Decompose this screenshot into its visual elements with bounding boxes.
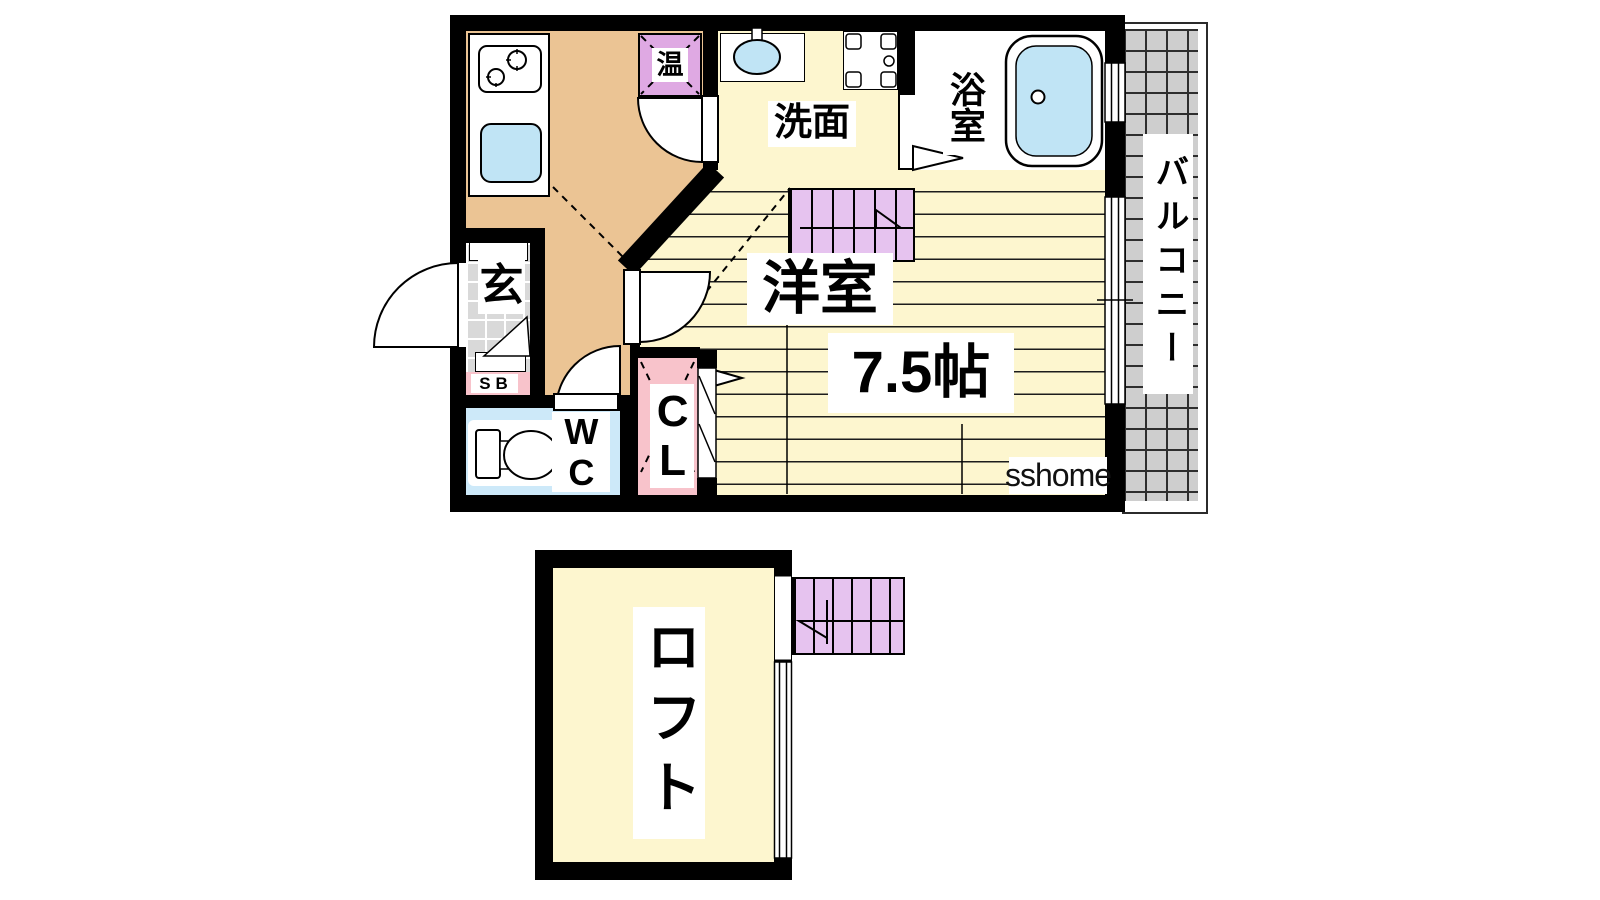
wall-closet-top-stub <box>697 350 717 368</box>
loft-staircase <box>792 577 905 655</box>
washing-machine-pan <box>843 31 898 90</box>
entrance-step-lower <box>475 352 526 372</box>
bathroom-label: 浴室 <box>943 59 987 155</box>
bathroom-door-gap <box>900 95 915 168</box>
western-room-size-label: 7.5帖 <box>828 333 1014 413</box>
entrance-label: 玄 <box>478 258 525 314</box>
floor-plan-canvas: 温 洗面 浴室 洋室 7.5帖 玄 SB WC CL バルコニー ロフト ssh… <box>0 0 1600 900</box>
hallway-floor-lower <box>545 228 630 395</box>
wc-text: WC <box>562 411 600 493</box>
western-room-text: 洋室 <box>762 259 878 320</box>
shoe-box-text: SB <box>479 375 513 393</box>
washroom-label: 洗面 <box>768 101 856 147</box>
water-heater-text: 温 <box>657 51 684 79</box>
western-room-label: 洋室 <box>747 253 893 325</box>
entrance-text: 玄 <box>480 263 524 309</box>
washroom-text: 洗面 <box>774 104 850 144</box>
washbasin-counter <box>720 33 805 82</box>
loft-text: ロフト <box>640 618 699 828</box>
western-room-staircase <box>788 188 915 262</box>
western-room-size-text: 7.5帖 <box>852 343 991 404</box>
wc-label: WC <box>552 412 610 492</box>
bathroom-text: 浴室 <box>946 71 984 143</box>
water-heater-label: 温 <box>652 48 688 82</box>
balcony-label: バルコニー <box>1143 134 1193 394</box>
closet-text: CL <box>649 387 695 485</box>
closet-label: CL <box>650 384 694 488</box>
loft-label: ロフト <box>633 607 705 839</box>
entrance-door-arc <box>374 263 458 347</box>
balcony-text: バルコニー <box>1150 154 1186 374</box>
kitchen-counter <box>468 33 550 197</box>
watermark-text: sshome <box>1005 459 1111 493</box>
watermark: sshome <box>1009 457 1107 494</box>
wall-closet-bottom-stub <box>697 478 717 495</box>
shoe-box-label: SB <box>471 374 518 393</box>
